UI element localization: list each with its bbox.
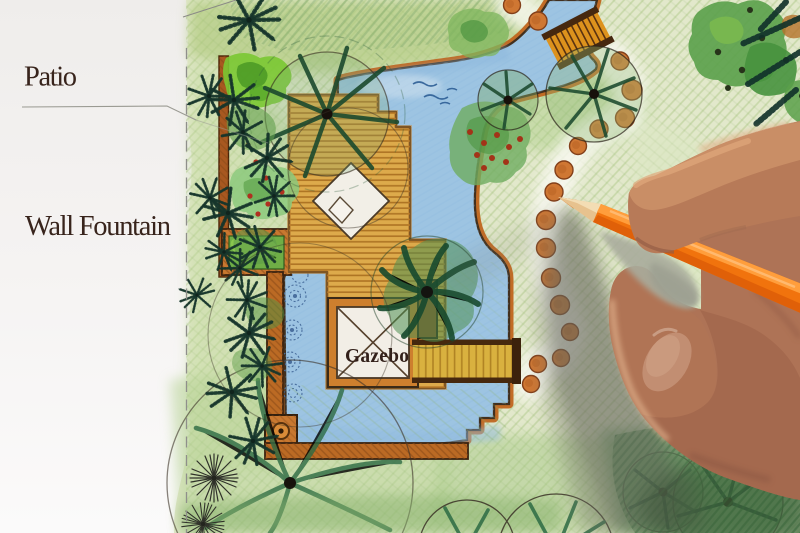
svg-text:Gazebo: Gazebo bbox=[345, 346, 409, 367]
svg-text:Patio: Patio bbox=[24, 62, 77, 93]
svg-text:Wall Fountain: Wall Fountain bbox=[25, 211, 171, 242]
